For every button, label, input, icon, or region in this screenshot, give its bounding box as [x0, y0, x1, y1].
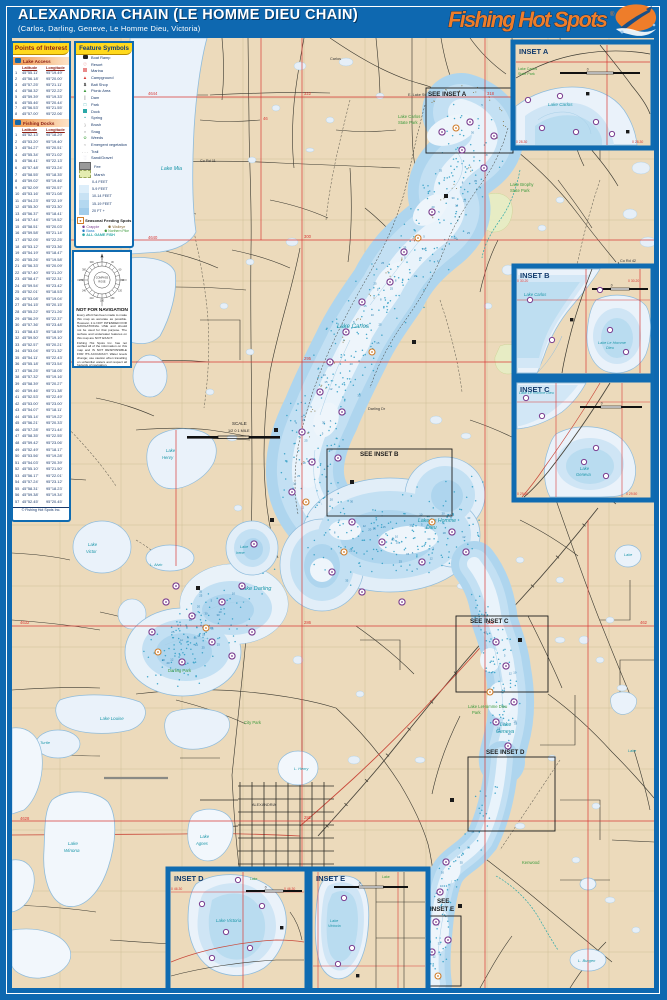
svg-text:0 46.30: 0 46.30	[284, 887, 295, 891]
svg-text:INSET B: INSET B	[520, 271, 550, 280]
svg-text:SEE INSET D: SEE INSET D	[486, 749, 525, 756]
svg-text:15: 15	[210, 626, 214, 630]
svg-text:30: 30	[452, 196, 456, 200]
svg-text:Lake Victoria: Lake Victoria	[216, 918, 242, 923]
svg-text:INSET A: INSET A	[519, 47, 549, 56]
svg-text:35: 35	[345, 579, 349, 583]
svg-text:210: 210	[90, 298, 95, 300]
svg-text:20: 20	[419, 256, 423, 260]
svg-text:Winona: Winona	[64, 848, 80, 853]
svg-text:SEE: SEE	[437, 898, 449, 905]
svg-text:30: 30	[111, 262, 114, 264]
svg-text:12: 12	[430, 556, 434, 560]
svg-text:INSET D: INSET D	[174, 874, 204, 883]
svg-text:SEE INSET A: SEE INSET A	[428, 91, 467, 98]
svg-text:Lake LeHomme Dieu: Lake LeHomme Dieu	[468, 704, 508, 709]
svg-text:15: 15	[383, 525, 387, 529]
svg-text:10: 10	[513, 671, 517, 675]
svg-text:30: 30	[350, 500, 354, 504]
svg-text:Lake Le Homme: Lake Le Homme	[598, 341, 626, 345]
svg-text:Lake Brophy: Lake Brophy	[510, 182, 534, 187]
svg-text:INSET E: INSET E	[316, 874, 345, 883]
svg-text:Co Rd 42: Co Rd 42	[620, 259, 636, 263]
svg-text:10: 10	[323, 373, 327, 377]
svg-text:30: 30	[357, 393, 361, 397]
svg-text:0 28.30: 0 28.30	[516, 140, 527, 144]
svg-text:0 29.50: 0 29.50	[626, 492, 637, 496]
svg-text:0: 0	[265, 886, 267, 890]
svg-text:15: 15	[376, 341, 380, 345]
svg-text:INSET C: INSET C	[520, 385, 550, 394]
svg-text:18: 18	[513, 720, 517, 724]
svg-text:120: 120	[118, 290, 123, 292]
svg-text:L. Burgen: L. Burgen	[578, 958, 596, 963]
svg-text:10: 10	[195, 643, 199, 647]
svg-text:30: 30	[427, 537, 431, 541]
svg-text:18: 18	[329, 448, 333, 452]
svg-text:0: 0	[601, 402, 603, 406]
svg-text:0 28.30: 0 28.30	[632, 140, 643, 144]
svg-text:4632: 4632	[20, 620, 30, 625]
svg-text:10: 10	[467, 845, 471, 849]
svg-text:Darling Dr: Darling Dr	[368, 407, 386, 411]
svg-text:12: 12	[301, 506, 305, 510]
svg-text:Lake Carlos: Lake Carlos	[518, 67, 537, 71]
svg-text:25: 25	[217, 642, 221, 646]
svg-text:12: 12	[457, 855, 461, 859]
svg-text:4628: 4628	[20, 816, 30, 821]
svg-text:20: 20	[330, 498, 334, 502]
svg-text:10: 10	[232, 591, 236, 595]
svg-text:Lake: Lake	[500, 722, 511, 728]
svg-text:18: 18	[455, 203, 459, 207]
svg-text:462: 462	[640, 620, 648, 625]
svg-text:Henry: Henry	[162, 455, 174, 460]
svg-text:E. Lake St: E. Lake St	[408, 93, 426, 97]
svg-text:Lake: Lake	[580, 466, 590, 471]
svg-text:Lake: Lake	[240, 545, 248, 549]
svg-text:295: 295	[304, 356, 312, 361]
svg-text:0 29.50: 0 29.50	[517, 492, 528, 496]
svg-text:300: 300	[304, 234, 312, 239]
svg-text:10: 10	[395, 535, 399, 539]
svg-text:25: 25	[467, 231, 471, 235]
svg-text:30: 30	[322, 421, 326, 425]
svg-text:State Park: State Park	[510, 188, 530, 193]
svg-text:35: 35	[474, 179, 478, 183]
svg-text:Lake Carlos: Lake Carlos	[337, 324, 369, 330]
svg-text:281: 281	[304, 815, 312, 820]
svg-text:25: 25	[463, 198, 467, 202]
svg-text:12: 12	[509, 671, 513, 675]
svg-text:Turtle: Turtle	[40, 740, 51, 745]
svg-text:L. Henry: L. Henry	[294, 767, 309, 771]
svg-text:18: 18	[303, 461, 307, 465]
svg-text:State Park: State Park	[398, 120, 418, 125]
svg-text:®: ®	[610, 11, 615, 18]
svg-text:35: 35	[460, 861, 464, 865]
svg-text:Kenwood: Kenwood	[522, 860, 540, 865]
svg-text:4640: 4640	[148, 235, 158, 240]
svg-text:12: 12	[363, 524, 367, 528]
svg-text:20: 20	[197, 605, 201, 609]
svg-text:25: 25	[349, 548, 353, 552]
svg-text:25: 25	[410, 523, 414, 527]
svg-text:1/2 0 1 MILE: 1/2 0 1 MILE	[228, 429, 250, 433]
svg-text:Victoria: Victoria	[328, 924, 341, 928]
svg-text:0: 0	[101, 259, 103, 261]
svg-text:Lake: Lake	[624, 553, 632, 557]
svg-text:Fishing Hot Spots: Fishing Hot Spots	[448, 7, 608, 32]
svg-text:State Park: State Park	[518, 72, 535, 76]
svg-text:25: 25	[379, 322, 383, 326]
svg-text:35: 35	[471, 830, 475, 834]
svg-text:Carlos: Carlos	[330, 57, 341, 61]
svg-text:15: 15	[324, 380, 328, 384]
svg-text:10: 10	[219, 610, 223, 614]
svg-text:12: 12	[437, 259, 441, 263]
svg-text:INSET E: INSET E	[430, 906, 454, 913]
svg-text:46: 46	[263, 116, 268, 121]
svg-text:0 46.30: 0 46.30	[171, 887, 182, 891]
svg-text:Lake Le Homme: Lake Le Homme	[418, 518, 456, 524]
svg-text:SEE INSET C: SEE INSET C	[470, 618, 509, 625]
svg-text:60: 60	[119, 270, 122, 272]
svg-text:25: 25	[396, 541, 400, 545]
svg-text:Irene: Irene	[236, 551, 245, 555]
svg-text:10: 10	[293, 481, 297, 485]
svg-text:25: 25	[297, 474, 301, 478]
svg-text:Lake: Lake	[68, 841, 78, 846]
svg-text:330: 330	[90, 262, 95, 264]
svg-text:30: 30	[467, 516, 471, 520]
svg-text:20: 20	[350, 362, 354, 366]
svg-text:Dieu: Dieu	[606, 346, 615, 350]
svg-text:30: 30	[441, 870, 445, 874]
svg-text:L. Alvin: L. Alvin	[150, 563, 162, 567]
svg-text:10: 10	[440, 884, 444, 888]
svg-text:18: 18	[448, 513, 452, 517]
svg-text:318: 318	[487, 91, 495, 96]
svg-text:Lake: Lake	[382, 875, 390, 879]
svg-text:322: 322	[304, 91, 312, 96]
svg-text:300: 300	[82, 270, 87, 272]
svg-text:15: 15	[406, 552, 410, 556]
svg-text:25: 25	[202, 646, 206, 650]
svg-text:Lake Mia: Lake Mia	[161, 166, 182, 172]
svg-text:150: 150	[110, 298, 115, 300]
svg-text:Co Rd 11: Co Rd 11	[200, 159, 216, 163]
svg-text:0: 0	[611, 284, 613, 288]
svg-text:25: 25	[171, 630, 175, 634]
svg-text:Agnes: Agnes	[195, 841, 209, 846]
svg-text:Lake: Lake	[166, 448, 176, 453]
svg-text:18: 18	[162, 658, 166, 662]
svg-text:10: 10	[371, 313, 375, 317]
svg-text:18: 18	[443, 531, 447, 535]
svg-text:Darling Park: Darling Park	[168, 668, 192, 673]
svg-text:25: 25	[390, 287, 394, 291]
svg-text:Lake: Lake	[330, 919, 338, 923]
svg-text:35: 35	[439, 169, 443, 173]
svg-text:Lake: Lake	[200, 834, 210, 839]
svg-text:Lake Carlos: Lake Carlos	[398, 114, 420, 119]
svg-text:30: 30	[471, 131, 475, 135]
svg-text:18: 18	[197, 634, 201, 638]
svg-text:25: 25	[304, 439, 308, 443]
svg-text:Park: Park	[472, 710, 482, 715]
svg-text:Geneva: Geneva	[576, 472, 591, 477]
svg-text:12: 12	[453, 236, 457, 240]
svg-text:25: 25	[302, 418, 306, 422]
svg-text:ROSE: ROSE	[98, 280, 105, 283]
svg-text:Geneva: Geneva	[496, 729, 514, 735]
svg-text:25: 25	[374, 282, 378, 286]
svg-text:SEE INSET B: SEE INSET B	[360, 451, 399, 458]
svg-text:COMPASS: COMPASS	[96, 277, 109, 280]
svg-text:180: 180	[100, 301, 105, 303]
svg-text:ALEXANDRIA: ALEXANDRIA	[252, 803, 277, 807]
svg-text:18: 18	[202, 633, 206, 637]
svg-text:City Park: City Park	[244, 720, 262, 725]
svg-text:20: 20	[368, 528, 372, 532]
svg-text:20: 20	[442, 511, 446, 515]
svg-text:4644: 4644	[148, 91, 158, 96]
svg-text:25: 25	[381, 261, 385, 265]
svg-text:Dieu: Dieu	[426, 525, 437, 531]
svg-text:240: 240	[82, 290, 87, 292]
svg-text:25: 25	[373, 526, 377, 530]
svg-text:Lake Carlos: Lake Carlos	[524, 292, 547, 297]
svg-text:286: 286	[304, 620, 312, 625]
svg-text:12: 12	[170, 658, 174, 662]
svg-text:12: 12	[462, 535, 466, 539]
svg-text:15: 15	[484, 631, 488, 635]
svg-text:15: 15	[414, 274, 418, 278]
svg-text:0 30.20: 0 30.20	[628, 279, 639, 283]
svg-text:Lake: Lake	[628, 749, 636, 753]
svg-text:Lake Louise: Lake Louise	[100, 716, 124, 721]
svg-text:25: 25	[399, 560, 403, 564]
svg-text:0: 0	[359, 882, 361, 886]
svg-text:0: 0	[587, 68, 589, 72]
svg-text:25: 25	[199, 593, 203, 597]
svg-text:Lake: Lake	[250, 877, 257, 881]
svg-text:20: 20	[422, 247, 426, 251]
svg-text:Lake Carlos: Lake Carlos	[548, 102, 573, 107]
svg-text:Lake: Lake	[88, 542, 98, 547]
svg-text:Victor: Victor	[86, 549, 97, 554]
svg-text:SCALE: SCALE	[232, 421, 247, 426]
